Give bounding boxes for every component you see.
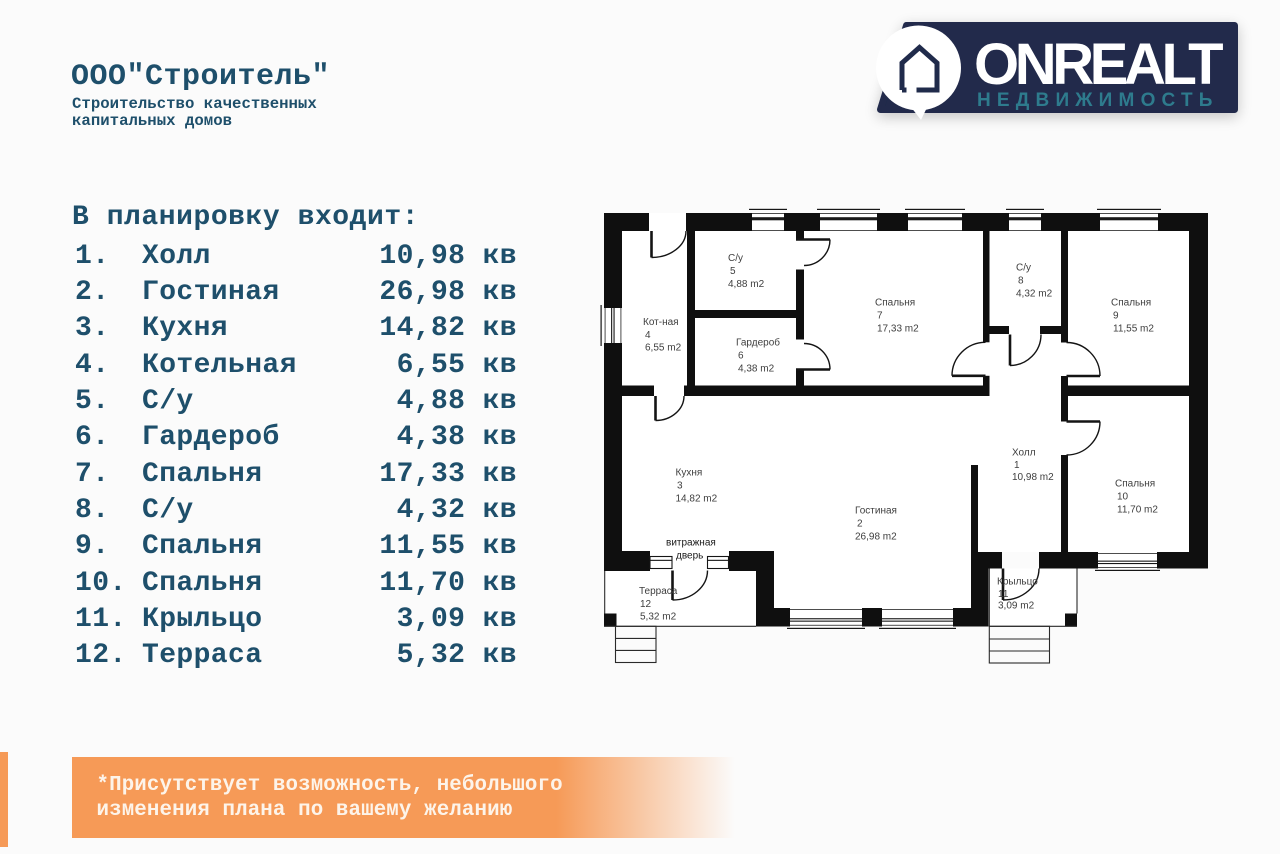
svg-text:11: 11 [998, 589, 1009, 600]
svg-text:10,98 m2: 10,98 m2 [1012, 472, 1054, 483]
svg-text:4,32 m2: 4,32 m2 [1016, 289, 1053, 300]
svg-text:Кот-ная: Кот-ная [643, 317, 679, 328]
svg-text:8: 8 [1018, 276, 1024, 287]
svg-text:4,38 m2: 4,38 m2 [738, 364, 775, 375]
svg-text:6,55 m2: 6,55 m2 [645, 343, 682, 354]
svg-text:26,98 m2: 26,98 m2 [855, 532, 897, 543]
svg-text:3: 3 [677, 481, 683, 492]
svg-text:Кухня: Кухня [676, 468, 703, 479]
svg-text:Гостиная: Гостиная [855, 506, 897, 517]
svg-text:Спальня: Спальня [875, 298, 915, 309]
svg-text:Терраса: Терраса [639, 586, 678, 597]
svg-text:11,70 m2: 11,70 m2 [1117, 505, 1158, 516]
svg-text:Гардероб: Гардероб [736, 337, 780, 349]
svg-text:дверь: дверь [676, 551, 703, 562]
svg-text:С/у: С/у [728, 253, 743, 264]
svg-text:5,32 m2: 5,32 m2 [640, 612, 677, 623]
svg-text:7: 7 [877, 311, 883, 322]
svg-text:5: 5 [730, 266, 736, 277]
svg-text:10: 10 [1117, 492, 1129, 503]
svg-text:14,82 m2: 14,82 m2 [676, 494, 718, 505]
svg-text:Холл: Холл [1012, 448, 1036, 459]
svg-text:Спальня: Спальня [1115, 479, 1155, 490]
svg-text:С/у: С/у [1016, 263, 1031, 274]
svg-text:Спальня: Спальня [1111, 298, 1151, 309]
svg-text:витражная: витражная [666, 538, 716, 549]
svg-text:3,09 m2: 3,09 m2 [998, 601, 1035, 612]
svg-text:9: 9 [1113, 311, 1119, 322]
svg-text:1: 1 [1014, 460, 1020, 471]
svg-text:2: 2 [857, 519, 863, 530]
svg-text:6: 6 [738, 351, 744, 362]
svg-text:Крыльцо: Крыльцо [997, 577, 1038, 588]
svg-text:17,33 m2: 17,33 m2 [877, 324, 919, 335]
svg-text:4,88 m2: 4,88 m2 [728, 279, 765, 290]
svg-text:4: 4 [645, 330, 651, 341]
svg-text:11,55 m2: 11,55 m2 [1113, 324, 1154, 335]
svg-text:12: 12 [640, 599, 652, 610]
